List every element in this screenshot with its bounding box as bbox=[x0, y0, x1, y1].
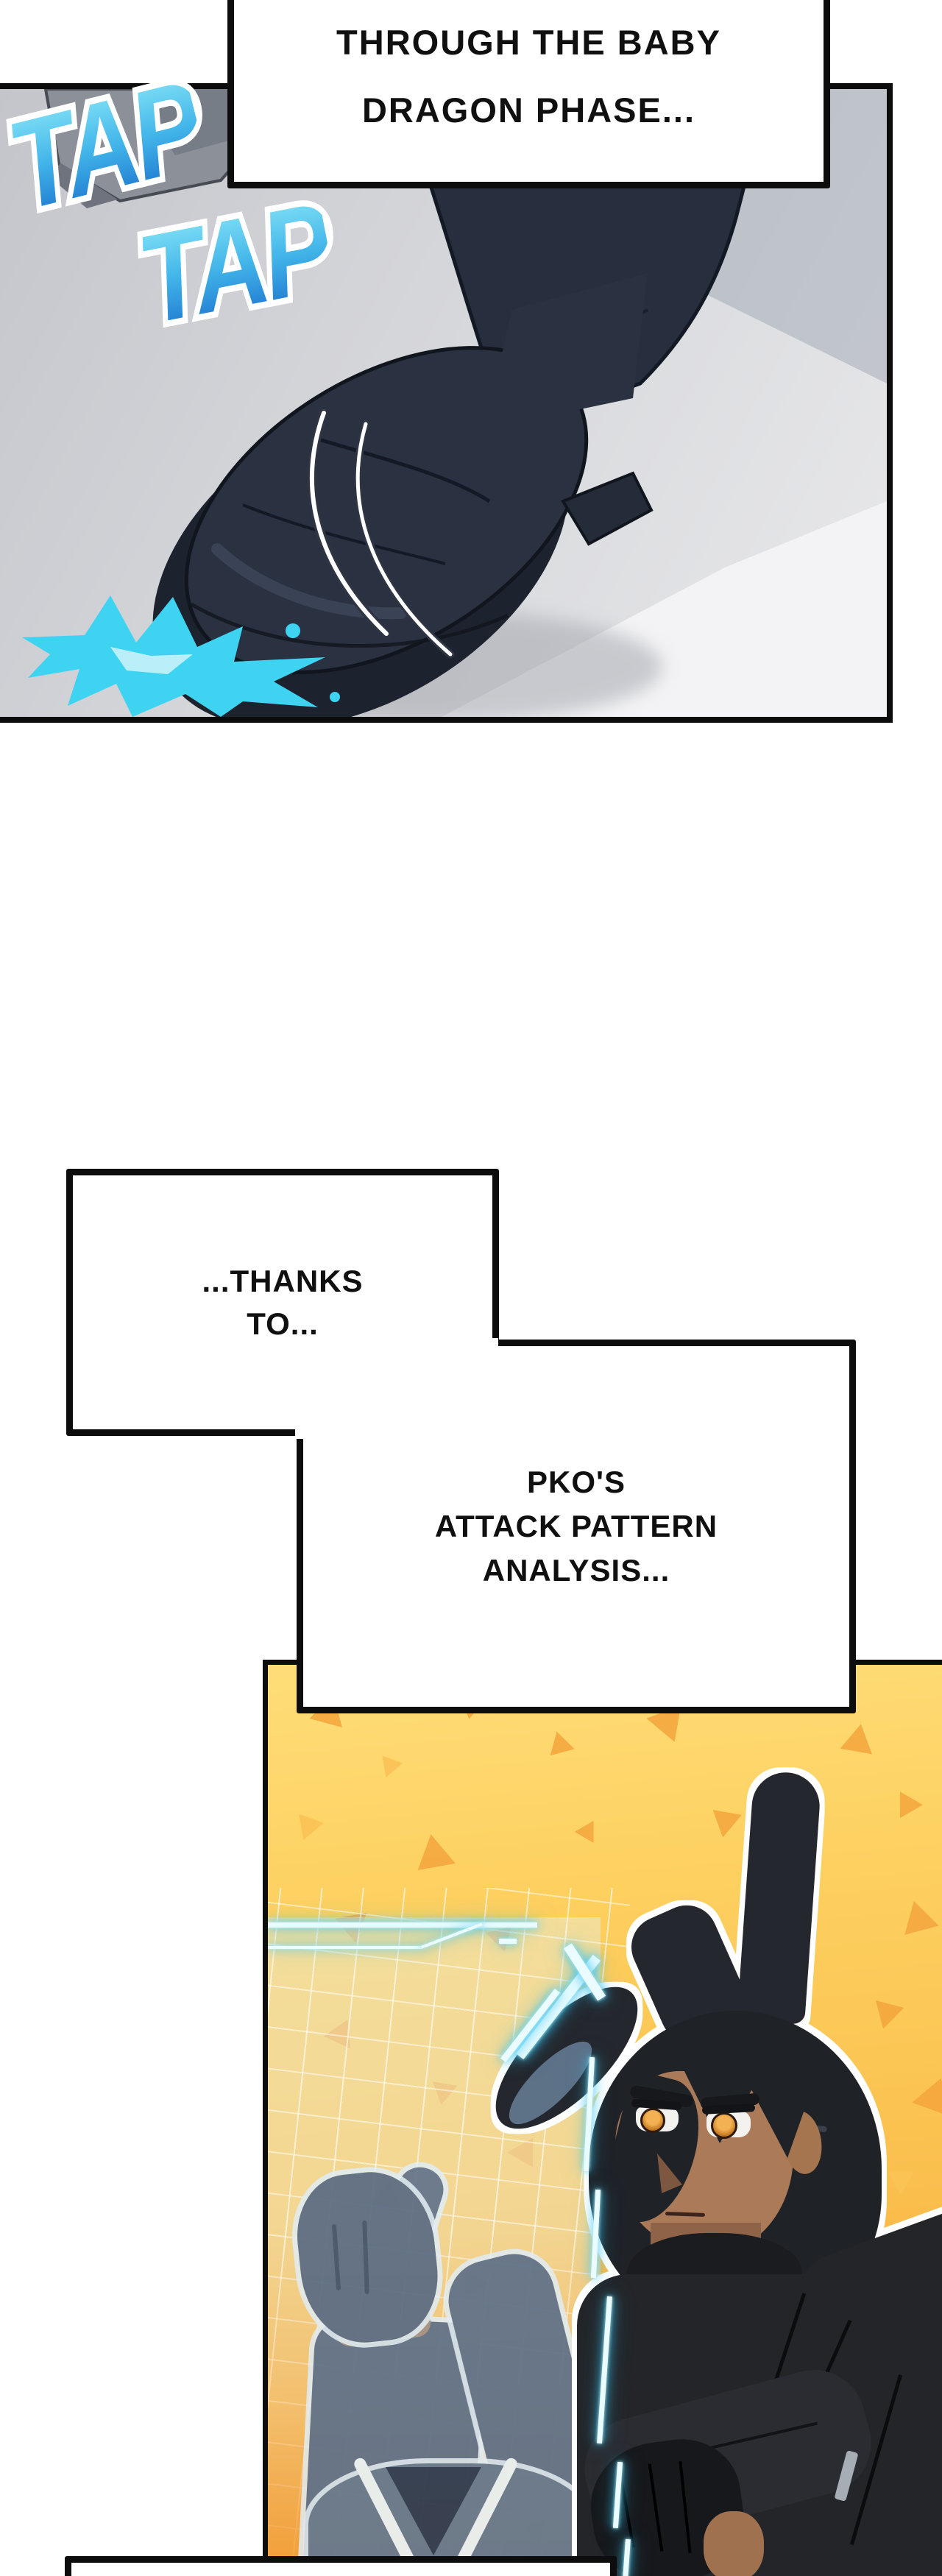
wrist-skin bbox=[704, 2511, 764, 2576]
sfx-tap-2: TAP TAP TAP bbox=[130, 184, 339, 344]
bubble-pko-line-2: ATTACK PATTERN bbox=[297, 1504, 856, 1549]
bubble-pko-line-1: PKO'S bbox=[297, 1460, 856, 1504]
bubble-top-line-1: WE'RE BARELY JUMPING bbox=[227, 0, 830, 9]
bunny-ear-straight bbox=[737, 1770, 821, 2025]
bunny-man-character bbox=[268, 1665, 942, 2576]
bubble-top-line-3: DRAGON PHASE... bbox=[227, 77, 830, 144]
bubble-thanks-line-2: TO... bbox=[66, 1303, 499, 1345]
eye-right-iris bbox=[711, 2112, 737, 2139]
webtoon-page: TAP TAP TAP TAP TAP TAP WE'RE BARELY JUM… bbox=[0, 0, 942, 2576]
sfx-tap-2-fill: TAP bbox=[130, 184, 339, 344]
eye-left-iris bbox=[640, 2108, 665, 2133]
hud-dash bbox=[499, 1939, 517, 1944]
speech-bubble-pko-text: PKO'S ATTACK PATTERN ANALYSIS... bbox=[297, 1340, 856, 1713]
hud-bar-main bbox=[268, 1922, 537, 1928]
bubble-top-line-2: THROUGH THE BABY bbox=[227, 9, 830, 77]
bubble-thanks-line-1: ...THANKS bbox=[66, 1260, 499, 1303]
hud-bar-secondary bbox=[268, 1946, 422, 1949]
speech-bubble-top-text: WE'RE BARELY JUMPING THROUGH THE BABY DR… bbox=[227, 0, 830, 144]
comic-panel-bunny-man bbox=[263, 1660, 942, 2576]
speech-bubble-bottom-clipped bbox=[65, 2556, 617, 2576]
bubble-pko-line-3: ANALYSIS... bbox=[297, 1549, 856, 1593]
